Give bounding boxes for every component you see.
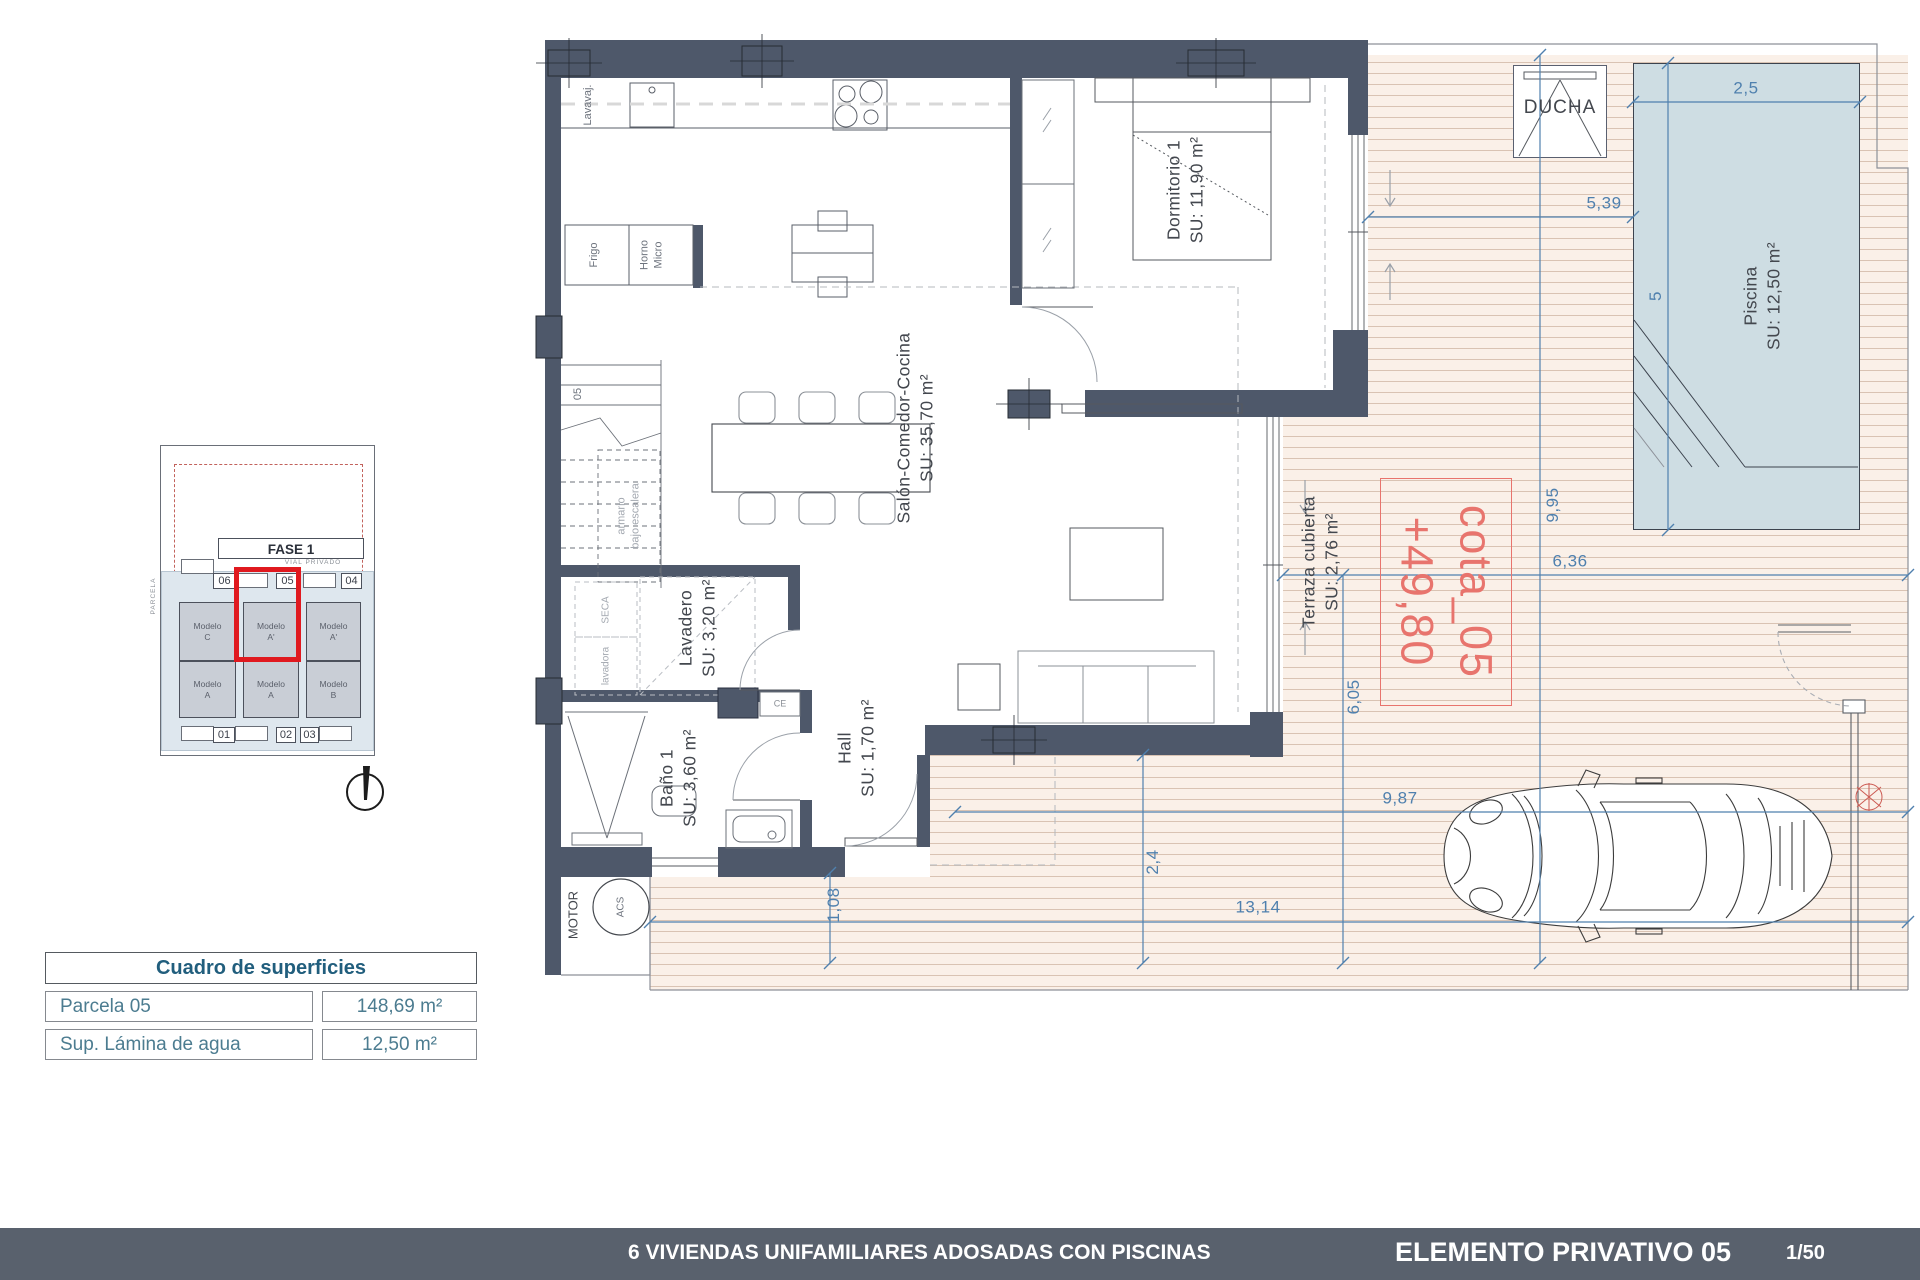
room-area: SU: 12,50 m²: [1762, 242, 1785, 350]
house-floor-upper: [561, 78, 1368, 390]
room-area: SU: 35,70 m²: [915, 333, 938, 524]
sliding-door-living: [1263, 417, 1283, 712]
site-house-a2: ModeloA': [306, 602, 361, 661]
site-plot-03: 03: [300, 727, 319, 743]
site-house-c: ModeloC: [179, 602, 236, 661]
surfaces-row-label: Sup. Lámina de agua: [45, 1029, 313, 1060]
room-name: Salón-Comedor-Cocina: [892, 333, 915, 524]
wall-south-bath-a: [545, 847, 652, 877]
label-ducha: DUCHA: [1524, 96, 1597, 120]
room-area: SU: 11,90 m²: [1185, 137, 1208, 244]
dim-drive-depth: 2,4: [1142, 849, 1164, 874]
surfaces-table-title: Cuadro de superficies: [45, 952, 477, 984]
label-frigo: Frigo: [587, 242, 601, 267]
site-fase-label: FASE 1: [218, 538, 364, 559]
label-bano: Baño 1 SU: 3,60 m²: [655, 729, 701, 827]
wall-dormitorio-east-lower: [1333, 330, 1368, 390]
wall-hall-east: [917, 755, 930, 847]
label-seca: SECA: [600, 596, 613, 623]
site-house-a3: ModeloA: [179, 661, 236, 718]
room-name: Baño 1: [655, 729, 678, 827]
room-name: Hall: [833, 699, 856, 797]
cota-name: cota_05: [1446, 505, 1505, 679]
room-name: Piscina: [1739, 242, 1762, 350]
window-bath: [652, 847, 718, 877]
label-motor: MOTOR: [566, 891, 583, 939]
room-area: SU: 2,76 m²: [1320, 496, 1343, 628]
sheet-scale: 1/50: [1786, 1242, 1825, 1265]
site-plot-01: 01: [213, 727, 235, 743]
wall-dormitorio-south: [1085, 390, 1368, 417]
sheet-title: ELEMENTO PRIVATIVO 05: [1395, 1237, 1731, 1268]
label-terraza: Terraza cubierta SU: 2,76 m²: [1297, 496, 1343, 628]
wall-laundry-east: [788, 565, 800, 630]
dim-side-step: 1,08: [823, 887, 845, 922]
wall-fridge-stub: [693, 225, 703, 288]
wall-terrace-corner: [1263, 390, 1283, 417]
site-mini-pool: [303, 573, 336, 588]
dim-deck-width: 5,39: [1586, 192, 1621, 213]
label-salon: Salón-Comedor-Cocina SU: 35,70 m²: [892, 333, 938, 524]
dim-terrace-width: 6,36: [1552, 550, 1587, 571]
room-name: Terraza cubierta: [1297, 496, 1320, 628]
surfaces-row-value: 12,50 m²: [322, 1029, 477, 1060]
label-lavadora: lavadora: [600, 647, 613, 685]
site-plot-02: 02: [276, 727, 296, 743]
site-house-b: ModeloB: [306, 661, 361, 718]
room-area: SU: 1,70 m²: [856, 699, 879, 797]
dim-pool-length: 5: [1645, 291, 1667, 301]
surfaces-row-value: 148,69 m²: [322, 991, 477, 1022]
dim-terrace-depth: 6,05: [1343, 679, 1365, 714]
sliding-door-dormitorio: [1348, 135, 1368, 330]
site-vial-label: VIAL PRIVADO: [263, 559, 363, 566]
label-armario: armario bajo escalera: [615, 483, 644, 548]
site-plot-06: 06: [213, 573, 236, 589]
label-stair-number: 05: [571, 388, 585, 400]
site-key-plan: FASE 1 VIAL PRIVADO 06 05 04 01 02 03 Mo…: [160, 445, 375, 756]
wall-south-living: [925, 725, 1283, 755]
label-lavavajillas: Lavavaj.: [581, 85, 595, 126]
room-name: Dormitorio 1: [1162, 137, 1185, 244]
cota-box: cota_05 +49,80: [1380, 478, 1512, 706]
site-mini-pool: [181, 559, 214, 574]
label-piscina: Piscina SU: 12,50 m²: [1739, 242, 1785, 350]
dim-drive-width: 9,87: [1382, 787, 1417, 808]
title-bar: 6 VIVIENDAS UNIFAMILIARES ADOSADAS CON P…: [0, 1228, 1920, 1280]
site-mini-pool: [181, 726, 214, 741]
dim-plot-depth: 9,95: [1542, 487, 1564, 522]
room-name: Lavadero: [674, 579, 697, 677]
floor-plan-sheet: Dormitorio 1 SU: 11,90 m² Salón-Comedor-…: [0, 0, 1920, 1280]
site-house-a4: ModeloA: [243, 661, 299, 718]
wall-laundry-bath: [561, 690, 800, 702]
project-title: 6 VIVIENDAS UNIFAMILIARES ADOSADAS CON P…: [628, 1241, 1211, 1265]
wall-west-motor: [545, 877, 561, 975]
site-plot-04: 04: [341, 573, 362, 589]
site-mini-pool: [319, 726, 352, 741]
room-area: SU: 3,20 m²: [697, 579, 720, 677]
cota-level: +49,80: [1387, 505, 1446, 679]
wall-north: [545, 40, 1368, 78]
wall-south-bath-b: [718, 847, 845, 877]
wall-dormitorio-west: [1010, 40, 1022, 305]
label-hall: Hall SU: 1,70 m²: [833, 699, 879, 797]
site-parcela-label: PARCELA: [150, 578, 158, 615]
label-acs: ACS: [615, 897, 628, 918]
label-lavadero: Lavadero SU: 3,20 m²: [674, 579, 720, 677]
wall-bath-east-a: [800, 690, 812, 733]
wall-bath-east-b: [800, 800, 812, 877]
dim-pool-width: 2,5: [1733, 77, 1758, 98]
north-arrow: [347, 766, 383, 810]
wall-laundry-north: [561, 565, 800, 577]
wall-west: [545, 40, 561, 877]
cota-text: cota_05 +49,80: [1387, 505, 1506, 679]
label-horno: Horno Micro: [638, 240, 667, 270]
surfaces-row-label: Parcela 05: [45, 991, 313, 1022]
wall-dormitorio-east-upper: [1348, 40, 1368, 135]
site-highlight-plot-05: [234, 567, 301, 662]
label-ce: CE: [774, 698, 787, 709]
entrance-door-gap: [845, 847, 917, 877]
label-dormitorio: Dormitorio 1 SU: 11,90 m²: [1162, 137, 1208, 244]
dim-total-width: 13,14: [1235, 896, 1280, 917]
room-area: SU: 3,60 m²: [678, 729, 701, 827]
site-mini-pool: [235, 726, 268, 741]
